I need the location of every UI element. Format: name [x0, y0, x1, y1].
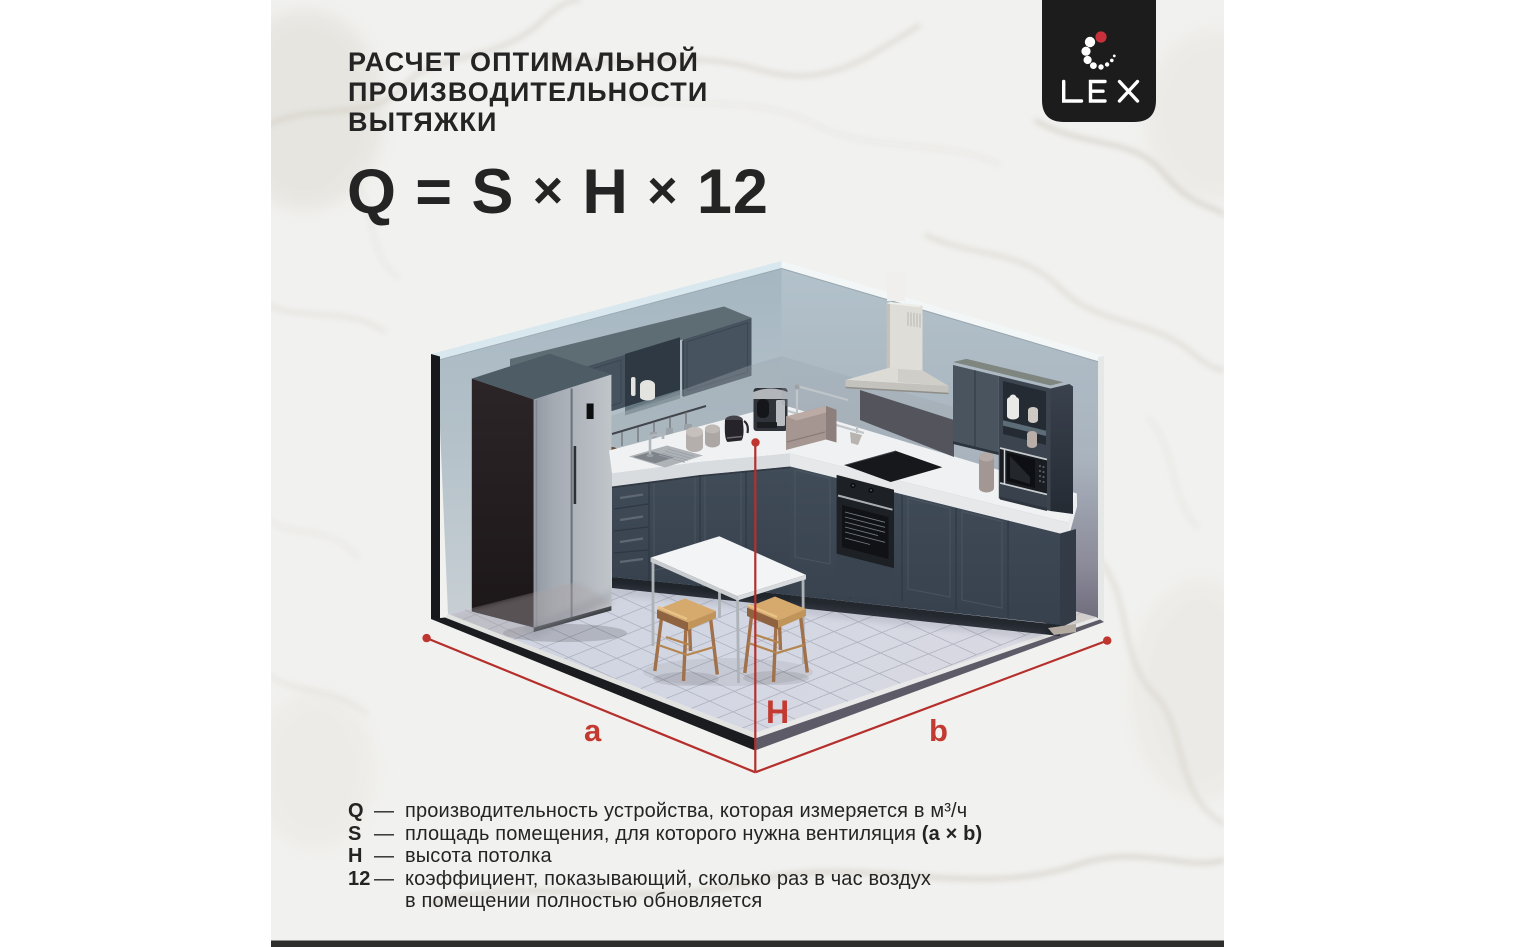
svg-text:b: b [929, 713, 948, 748]
svg-text:a: a [584, 713, 602, 748]
svg-text:H: H [766, 694, 789, 730]
